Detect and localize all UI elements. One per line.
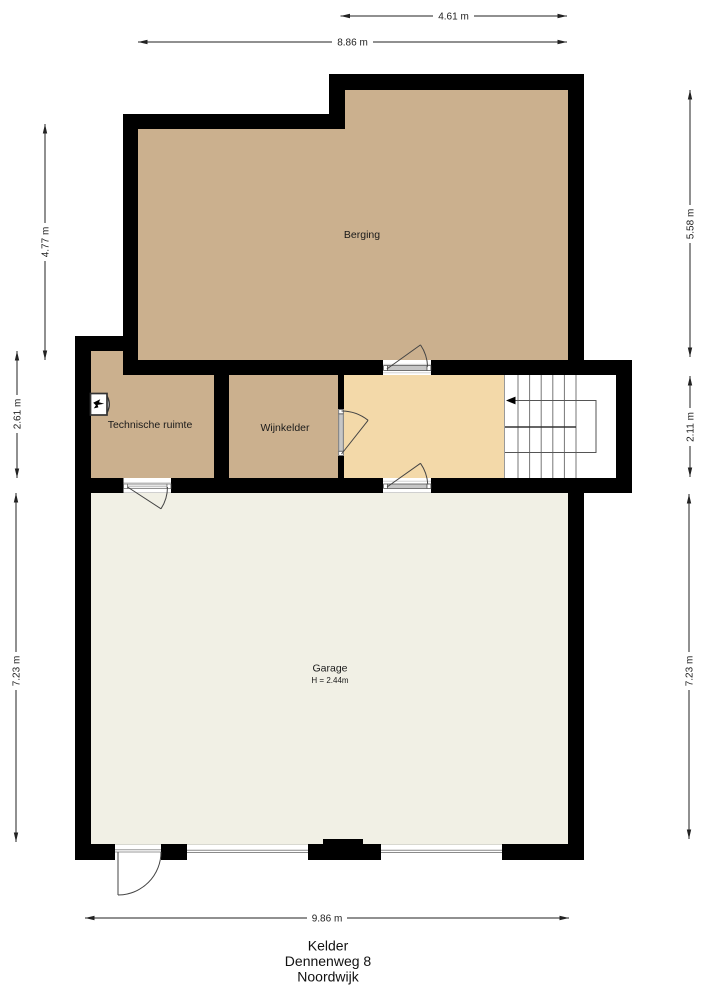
svg-text:2.61 m: 2.61 m <box>13 399 24 430</box>
svg-text:2.11 m: 2.11 m <box>686 412 697 442</box>
svg-text:Technische ruimte: Technische ruimte <box>108 419 193 431</box>
svg-text:Noordwijk: Noordwijk <box>297 969 359 985</box>
svg-text:7.23 m: 7.23 m <box>12 656 23 687</box>
svg-text:8.86 m: 8.86 m <box>337 38 368 49</box>
svg-text:H = 2.44m: H = 2.44m <box>311 676 348 685</box>
svg-text:4.61 m: 4.61 m <box>438 12 469 23</box>
svg-text:Dennenweg 8: Dennenweg 8 <box>285 953 372 969</box>
svg-text:4.77 m: 4.77 m <box>41 227 52 258</box>
svg-text:9.86 m: 9.86 m <box>312 914 343 925</box>
svg-text:Wijnkelder: Wijnkelder <box>260 422 310 434</box>
svg-text:Kelder: Kelder <box>308 938 349 954</box>
svg-text:5.58 m: 5.58 m <box>686 209 697 240</box>
svg-text:Garage: Garage <box>312 663 347 675</box>
svg-text:7.23 m: 7.23 m <box>685 656 696 687</box>
svg-text:Berging: Berging <box>344 229 380 241</box>
